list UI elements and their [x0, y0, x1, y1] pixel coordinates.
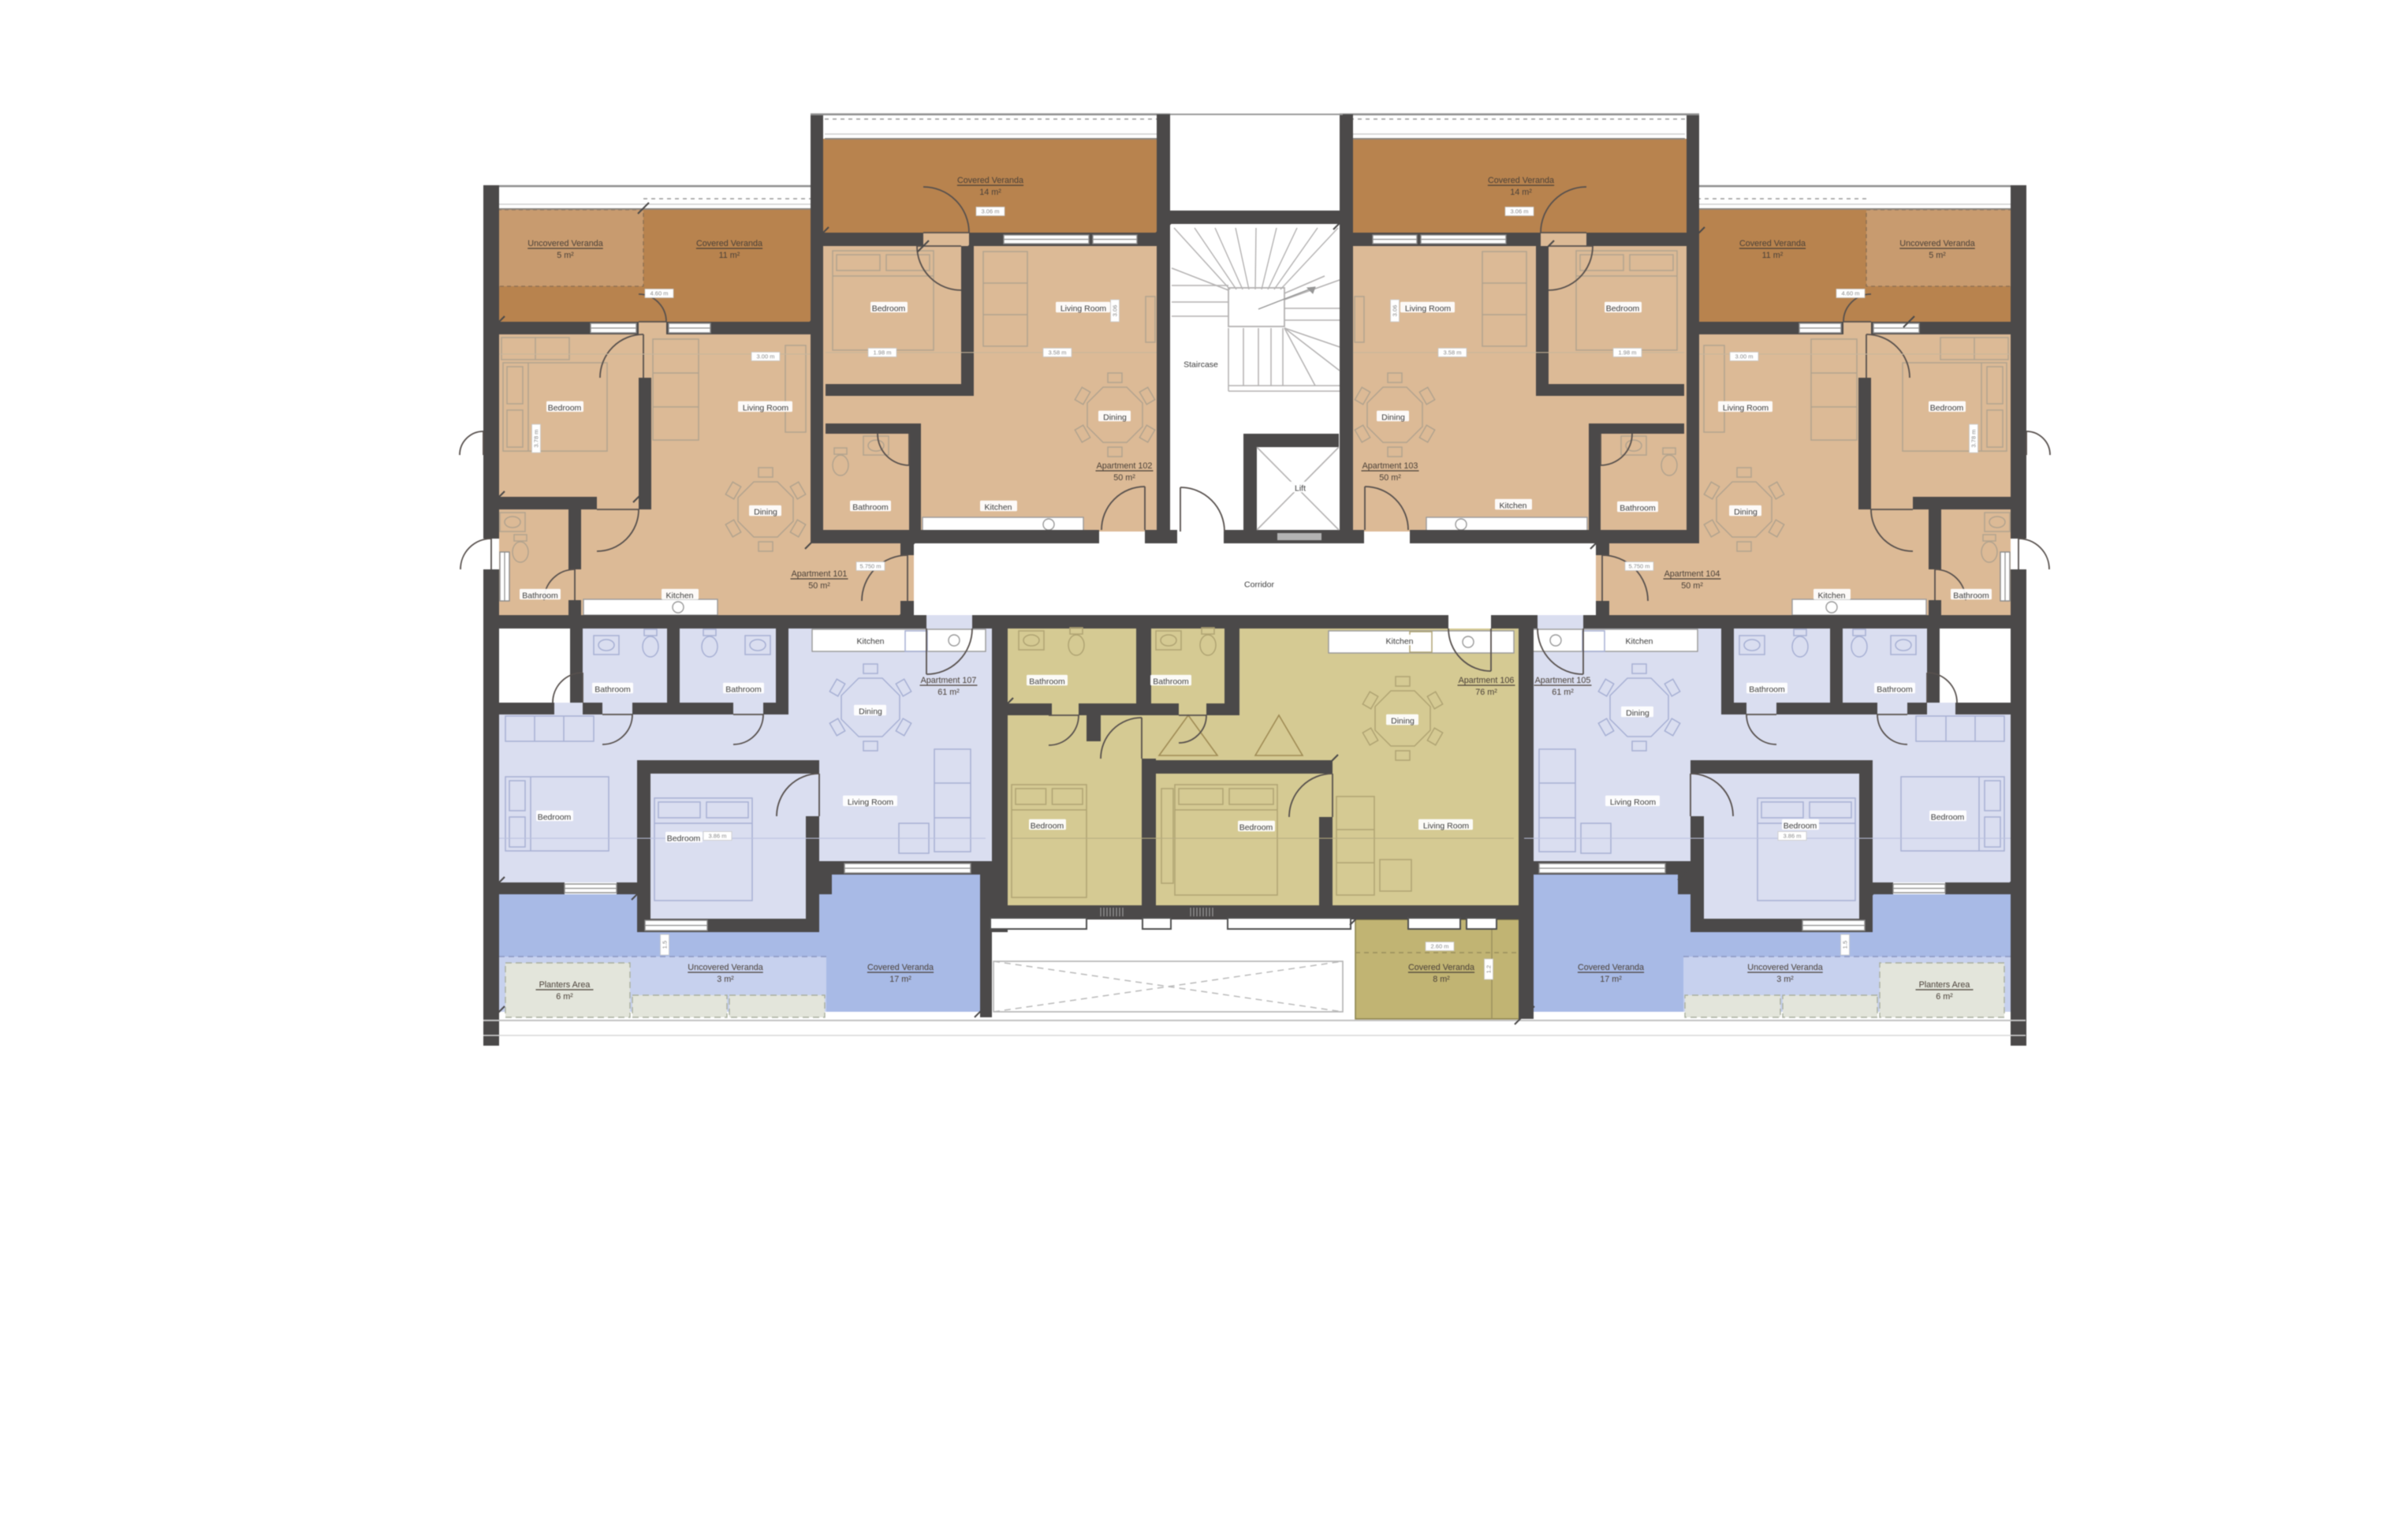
svg-text:2.60 m: 2.60 m [1431, 943, 1449, 950]
svg-text:1.5: 1.5 [1842, 941, 1849, 949]
svg-text:Bathroom: Bathroom [1620, 503, 1656, 513]
svg-text:Staircase: Staircase [1183, 360, 1218, 369]
svg-text:Dining: Dining [1391, 716, 1415, 726]
svg-text:11 m²: 11 m² [719, 251, 740, 260]
svg-text:5 m²: 5 m² [1929, 251, 1946, 260]
svg-text:Dining: Dining [1626, 708, 1649, 718]
svg-text:Living Room: Living Room [1723, 403, 1769, 412]
svg-text:Kitchen: Kitchen [984, 502, 1012, 512]
svg-text:Bedroom: Bedroom [1930, 403, 1964, 412]
svg-text:50 m²: 50 m² [808, 581, 830, 591]
svg-text:6 m²: 6 m² [556, 992, 573, 1002]
svg-text:4.60 m: 4.60 m [650, 290, 669, 297]
svg-text:Apartment 102: Apartment 102 [1097, 461, 1153, 471]
svg-text:Planters Area: Planters Area [539, 980, 591, 990]
svg-text:5.750 m: 5.750 m [859, 563, 881, 570]
svg-text:14 m²: 14 m² [1510, 188, 1532, 197]
svg-text:Dining: Dining [1381, 412, 1405, 422]
svg-text:Dining: Dining [859, 707, 882, 716]
svg-text:17 m²: 17 m² [1600, 975, 1622, 984]
svg-text:Living Room: Living Room [1060, 304, 1107, 313]
svg-text:5.750 m: 5.750 m [1628, 563, 1649, 570]
svg-text:Covered Veranda: Covered Veranda [696, 239, 762, 248]
svg-text:3.86 m: 3.86 m [1784, 833, 1802, 840]
svg-text:Covered Veranda: Covered Veranda [957, 176, 1023, 185]
svg-text:1.98 m: 1.98 m [874, 349, 892, 356]
svg-text:Lift: Lift [1295, 483, 1306, 493]
svg-text:3.78 m: 3.78 m [533, 430, 540, 448]
svg-text:Uncovered Veranda: Uncovered Veranda [688, 963, 762, 972]
svg-text:Apartment 103: Apartment 103 [1362, 461, 1418, 471]
svg-text:Apartment 106: Apartment 106 [1459, 676, 1515, 685]
svg-text:3.00 m: 3.00 m [1735, 353, 1754, 360]
svg-text:Covered Veranda: Covered Veranda [1408, 963, 1474, 972]
svg-text:Bathroom: Bathroom [595, 685, 631, 694]
svg-text:Kitchen: Kitchen [856, 636, 884, 646]
svg-text:Covered Veranda: Covered Veranda [1578, 963, 1644, 972]
svg-text:Apartment 101: Apartment 101 [792, 569, 848, 579]
svg-text:3 m²: 3 m² [1776, 975, 1794, 984]
svg-text:Bedroom: Bedroom [1931, 812, 1965, 822]
svg-text:Apartment 104: Apartment 104 [1664, 569, 1720, 579]
svg-text:Bathroom: Bathroom [1953, 591, 1989, 600]
svg-text:Kitchen: Kitchen [1385, 636, 1413, 646]
svg-text:Dining: Dining [754, 507, 777, 517]
svg-text:Covered Veranda: Covered Veranda [1739, 239, 1806, 248]
svg-text:Bathroom: Bathroom [1877, 685, 1913, 694]
svg-text:Living Room: Living Room [848, 797, 894, 807]
svg-text:3.00 m: 3.00 m [757, 353, 775, 360]
svg-text:4.60 m: 4.60 m [1842, 290, 1860, 297]
svg-text:1.5: 1.5 [662, 941, 669, 949]
svg-text:50 m²: 50 m² [1379, 473, 1401, 483]
svg-text:Kitchen: Kitchen [665, 591, 693, 600]
svg-text:5 m²: 5 m² [557, 251, 574, 260]
svg-text:Bedroom: Bedroom [538, 812, 572, 822]
svg-text:3.06 m: 3.06 m [1511, 208, 1529, 215]
svg-text:Bathroom: Bathroom [852, 502, 889, 512]
svg-text:Planters Area: Planters Area [1919, 980, 1970, 990]
svg-text:1.98 m: 1.98 m [1619, 349, 1637, 356]
svg-text:Apartment 107: Apartment 107 [921, 676, 977, 685]
svg-text:Bedroom: Bedroom [1031, 821, 1064, 830]
svg-text:Uncovered Veranda: Uncovered Veranda [527, 239, 602, 248]
svg-text:3.06: 3.06 [1392, 305, 1399, 317]
svg-text:Uncovered Veranda: Uncovered Veranda [1899, 239, 1974, 248]
svg-text:Kitchen: Kitchen [1625, 636, 1653, 646]
svg-text:Living Room: Living Room [1405, 304, 1452, 313]
svg-text:Bedroom: Bedroom [1784, 821, 1817, 830]
svg-text:Kitchen: Kitchen [1499, 501, 1526, 510]
svg-text:3.58 m: 3.58 m [1444, 349, 1462, 356]
svg-text:3.78 m: 3.78 m [1970, 430, 1977, 448]
svg-text:Covered Veranda: Covered Veranda [867, 963, 934, 972]
svg-text:Kitchen: Kitchen [1817, 591, 1845, 600]
svg-text:Bedroom: Bedroom [1606, 304, 1640, 313]
svg-text:3.58 m: 3.58 m [1049, 349, 1067, 356]
svg-text:Living Room: Living Room [743, 403, 789, 412]
svg-text:Dining: Dining [1734, 507, 1758, 517]
svg-text:1.2: 1.2 [1485, 965, 1493, 973]
svg-text:50 m²: 50 m² [1681, 581, 1703, 591]
svg-text:3.06: 3.06 [1112, 305, 1119, 317]
svg-text:Covered Veranda: Covered Veranda [1488, 176, 1554, 185]
svg-text:Apartment 105: Apartment 105 [1535, 676, 1591, 685]
svg-text:50 m²: 50 m² [1113, 473, 1135, 483]
svg-text:Bedroom: Bedroom [1239, 823, 1273, 832]
svg-text:61 m²: 61 m² [937, 688, 960, 697]
svg-text:Bedroom: Bedroom [872, 304, 906, 313]
svg-text:Bathroom: Bathroom [1029, 677, 1065, 686]
svg-text:76 m²: 76 m² [1475, 688, 1497, 697]
svg-text:14 m²: 14 m² [979, 188, 1001, 197]
svg-text:Living Room: Living Room [1610, 797, 1657, 807]
svg-text:Dining: Dining [1103, 412, 1127, 422]
svg-text:Corridor: Corridor [1244, 580, 1274, 589]
svg-text:8 m²: 8 m² [1433, 975, 1450, 984]
svg-text:Bathroom: Bathroom [725, 685, 762, 694]
svg-text:Bathroom: Bathroom [522, 591, 558, 600]
svg-text:Uncovered Veranda: Uncovered Veranda [1747, 963, 1822, 972]
svg-text:3.06 m: 3.06 m [982, 208, 1000, 215]
svg-text:Bathroom: Bathroom [1749, 685, 1785, 694]
svg-text:3 m²: 3 m² [717, 975, 734, 984]
svg-text:Bedroom: Bedroom [667, 834, 701, 843]
svg-text:6 m²: 6 m² [1936, 992, 1953, 1002]
svg-text:3.86 m: 3.86 m [709, 833, 727, 840]
svg-text:Living Room: Living Room [1423, 821, 1470, 830]
svg-text:61 m²: 61 m² [1552, 688, 1574, 697]
svg-text:Bathroom: Bathroom [1153, 677, 1189, 686]
svg-text:Bedroom: Bedroom [548, 403, 582, 412]
svg-text:17 m²: 17 m² [889, 975, 911, 984]
svg-text:11 m²: 11 m² [1762, 251, 1784, 260]
